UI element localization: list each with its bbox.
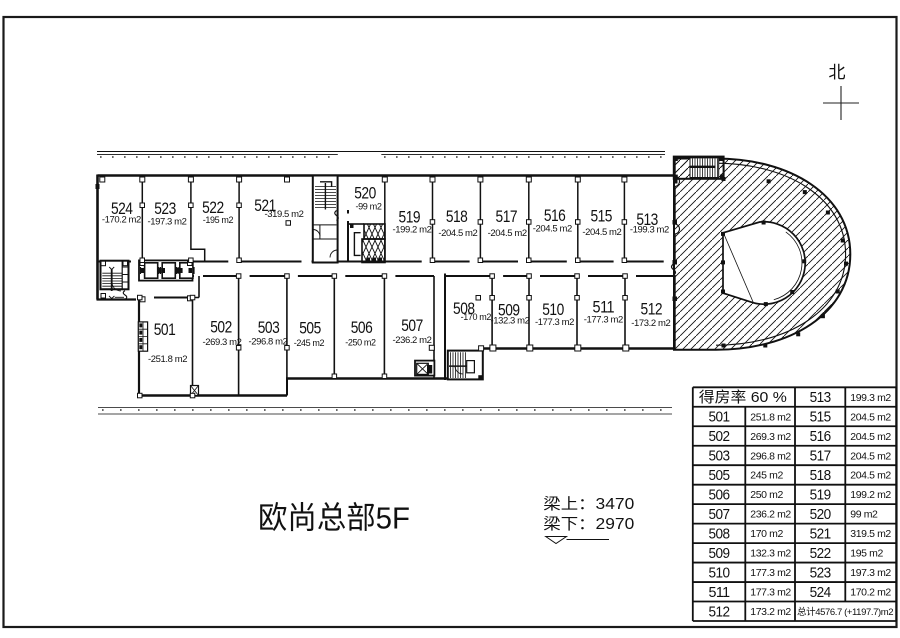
svg-text:503: 503 [709,449,730,465]
svg-text:-170 m2: -170 m2 [461,312,491,323]
svg-text:199.3 m2: 199.3 m2 [850,392,891,404]
svg-text:523: 523 [154,200,176,218]
svg-text:319.5 m2: 319.5 m2 [850,528,891,540]
svg-text:510: 510 [709,566,730,582]
svg-text:-269.3 m2: -269.3 m2 [202,337,241,348]
svg-text:511: 511 [709,585,731,601]
svg-text:516: 516 [810,429,831,445]
svg-text:518: 518 [810,468,831,484]
svg-text:518: 518 [446,208,468,226]
svg-text:177.3 m2: 177.3 m2 [750,587,791,599]
svg-text:-204.5 m2: -204.5 m2 [533,224,572,235]
svg-text:516: 516 [544,207,566,225]
svg-text:-177.3 m2: -177.3 m2 [535,317,574,328]
svg-text:197.3 m2: 197.3 m2 [850,567,891,579]
svg-text:204.5 m2: 204.5 m2 [850,470,891,482]
svg-text:515: 515 [590,208,612,226]
svg-text:-245 m2: -245 m2 [294,338,324,349]
svg-text:-197.3 m2: -197.3 m2 [147,217,186,228]
svg-text:269.3 m2: 269.3 m2 [750,431,791,443]
svg-text:-199.3 m2: -199.3 m2 [630,224,669,235]
svg-text:-173.2 m2: -173.2 m2 [631,318,670,329]
svg-text:北: 北 [829,63,846,82]
svg-text:170 m2: 170 m2 [750,528,783,540]
svg-text:得房率 60 %: 得房率 60 % [699,389,787,406]
svg-text:505: 505 [709,468,730,484]
svg-text:515: 515 [810,410,831,426]
svg-text:520: 520 [354,185,376,203]
svg-text:170.2 m2: 170.2 m2 [850,587,891,599]
svg-text:-132.3 m2: -132.3 m2 [490,316,529,327]
svg-text:-170.2 m2: -170.2 m2 [102,215,141,226]
svg-text:510: 510 [542,301,564,319]
svg-text:507: 507 [401,317,423,335]
svg-text:503: 503 [258,319,280,337]
svg-text:99 m2: 99 m2 [850,509,878,521]
svg-text:501: 501 [154,321,176,339]
svg-text:204.5 m2: 204.5 m2 [850,411,891,423]
svg-text:251.8 m2: 251.8 m2 [750,411,791,423]
svg-text:梁下：2970: 梁下：2970 [543,515,634,533]
svg-text:520: 520 [810,507,831,523]
svg-text:508: 508 [709,527,730,543]
svg-text:199.2 m2: 199.2 m2 [850,489,891,501]
svg-text:-204.5 m2: -204.5 m2 [582,227,621,238]
svg-text:506: 506 [351,319,373,337]
svg-text:204.5 m2: 204.5 m2 [850,450,891,462]
svg-text:梁上：3470: 梁上：3470 [543,495,634,513]
svg-text:502: 502 [210,318,232,336]
svg-text:-251.8 m2: -251.8 m2 [148,354,187,365]
svg-text:524: 524 [810,585,831,601]
svg-text:512: 512 [641,300,663,318]
svg-text:509: 509 [709,546,730,562]
svg-text:236.2 m2: 236.2 m2 [750,509,791,521]
svg-text:519: 519 [810,488,831,504]
svg-text:195 m2: 195 m2 [850,548,883,560]
svg-text:250 m2: 250 m2 [750,489,783,501]
svg-text:517: 517 [496,208,518,226]
svg-text:512: 512 [709,605,730,621]
svg-text:177.3 m2: 177.3 m2 [750,567,791,579]
svg-text:245 m2: 245 m2 [750,470,783,482]
svg-text:-296.8 m2: -296.8 m2 [248,337,287,348]
svg-text:-177.3 m2: -177.3 m2 [584,315,623,326]
svg-text:132.3 m2: 132.3 m2 [750,548,791,560]
svg-text:501: 501 [709,410,730,426]
svg-text:517: 517 [810,449,831,465]
svg-text:507: 507 [709,507,730,523]
svg-text:-250 m2: -250 m2 [345,338,375,349]
svg-text:-195 m2: -195 m2 [203,215,233,226]
svg-text:-99 m2: -99 m2 [355,202,381,213]
svg-text:505: 505 [299,319,321,337]
svg-text:-236.2 m2: -236.2 m2 [392,335,431,346]
svg-text:-204.5 m2: -204.5 m2 [438,228,477,239]
svg-text:-204.5 m2: -204.5 m2 [488,228,527,239]
svg-text:-319.5 m2: -319.5 m2 [264,209,303,220]
svg-text:522: 522 [810,546,831,562]
svg-text:502: 502 [709,429,730,445]
svg-text:欧尚总部5F: 欧尚总部5F [258,501,410,536]
svg-text:173.2 m2: 173.2 m2 [750,606,791,618]
svg-text:204.5 m2: 204.5 m2 [850,431,891,443]
svg-text:513: 513 [810,390,831,406]
svg-text:-199.2 m2: -199.2 m2 [392,225,431,236]
svg-text:总计4576.7 (+1197.7)m2: 总计4576.7 (+1197.7)m2 [797,606,893,618]
svg-text:296.8 m2: 296.8 m2 [750,450,791,462]
svg-text:521: 521 [810,527,831,543]
svg-text:506: 506 [709,488,730,504]
svg-text:523: 523 [810,566,831,582]
